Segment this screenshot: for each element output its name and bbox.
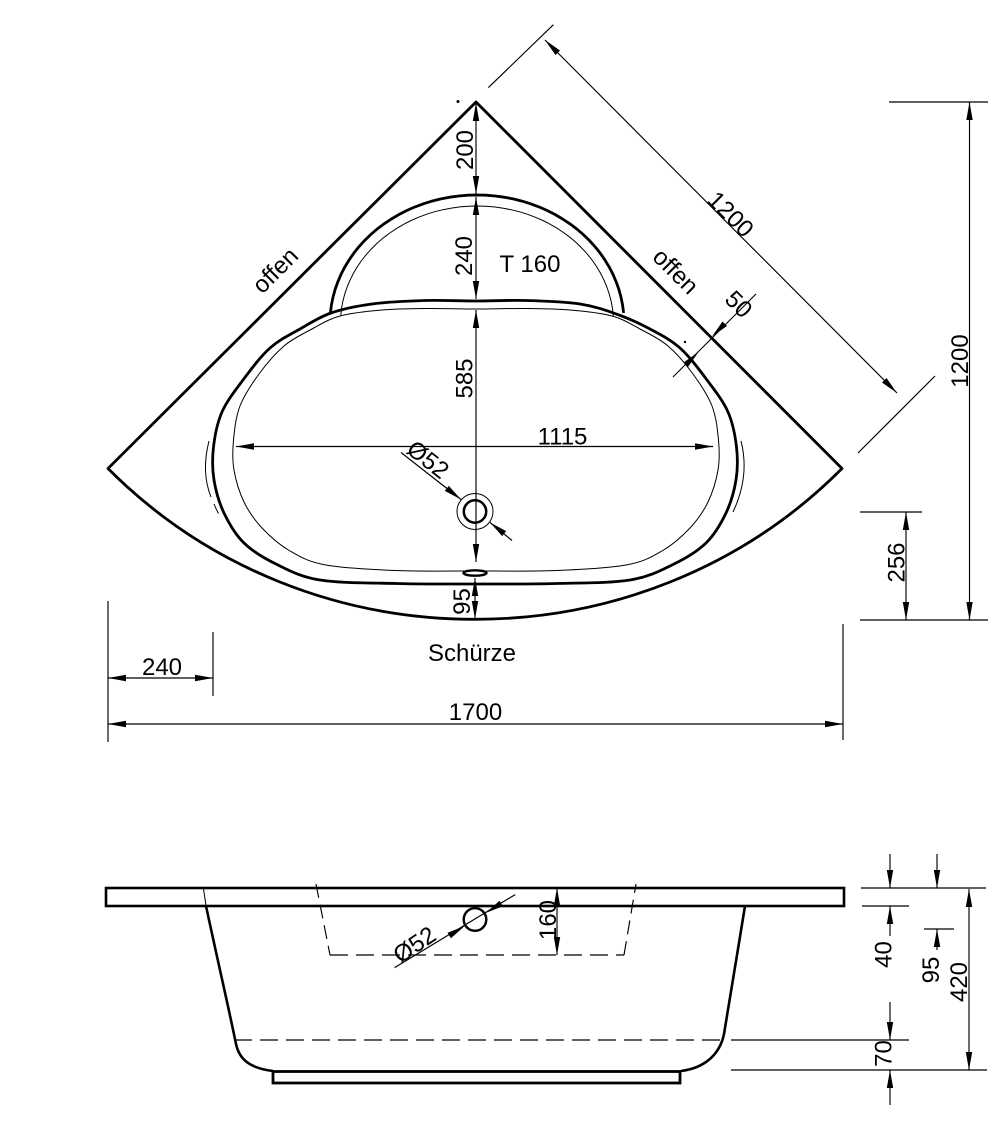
svg-text:40: 40 (871, 941, 898, 968)
svg-text:1200: 1200 (947, 334, 974, 387)
svg-text:95: 95 (918, 957, 945, 984)
svg-text:95: 95 (449, 588, 476, 615)
svg-text:1700: 1700 (449, 699, 502, 726)
svg-text:160: 160 (535, 900, 562, 940)
svg-text:256: 256 (884, 542, 911, 582)
svg-text:240: 240 (451, 236, 478, 276)
svg-text:T 160: T 160 (500, 251, 561, 278)
svg-text:200: 200 (452, 130, 479, 170)
svg-text:Schürze: Schürze (428, 640, 516, 667)
svg-text:585: 585 (452, 358, 479, 398)
svg-text:420: 420 (946, 962, 973, 1002)
svg-text:70: 70 (871, 1040, 898, 1067)
svg-text:1115: 1115 (538, 424, 588, 451)
svg-text:240: 240 (142, 654, 182, 681)
